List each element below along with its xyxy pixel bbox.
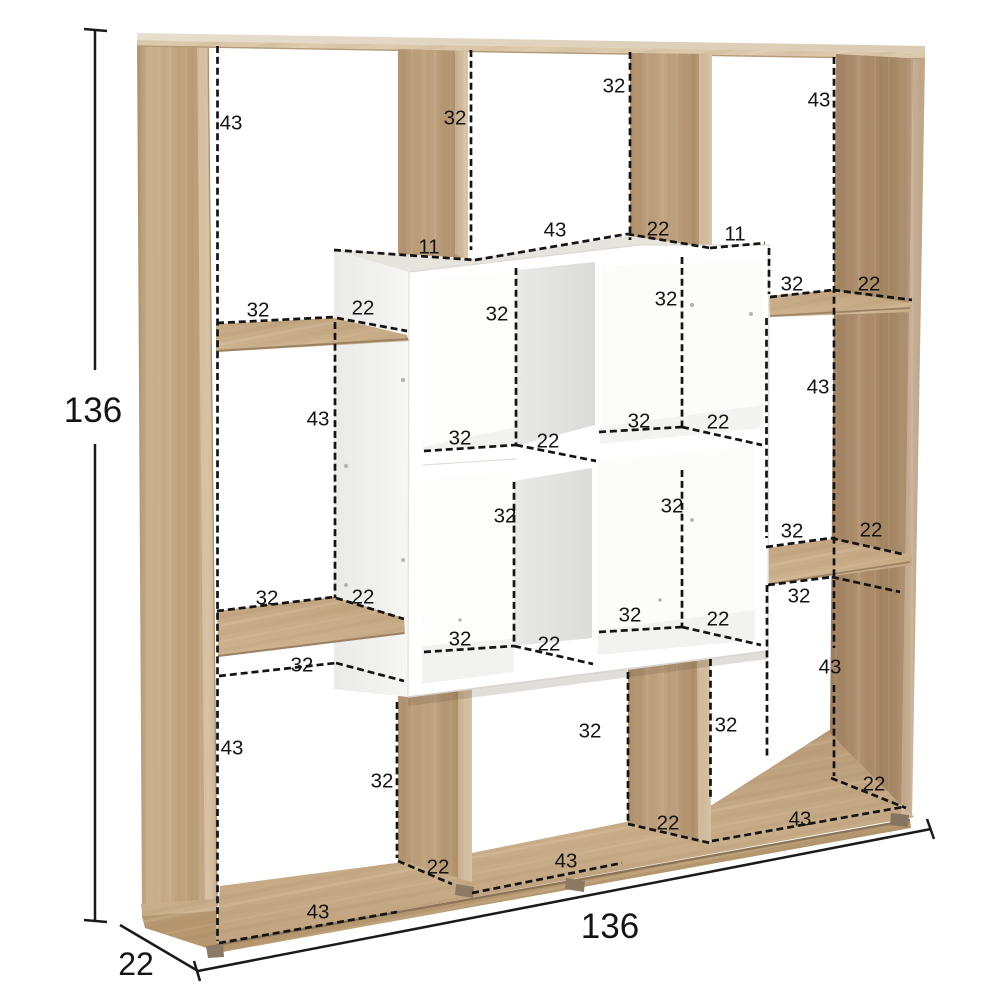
svg-text:22: 22 — [537, 429, 560, 452]
svg-text:32: 32 — [371, 769, 394, 792]
svg-text:43: 43 — [221, 736, 244, 759]
svg-text:32: 32 — [247, 298, 270, 321]
svg-text:43: 43 — [819, 655, 842, 678]
svg-text:32: 32 — [449, 627, 472, 650]
svg-text:22: 22 — [657, 811, 680, 834]
svg-text:43: 43 — [789, 807, 812, 830]
svg-text:22: 22 — [860, 518, 883, 541]
svg-text:136: 136 — [581, 907, 639, 946]
svg-text:32: 32 — [449, 426, 472, 449]
svg-text:11: 11 — [724, 222, 745, 245]
svg-text:32: 32 — [486, 302, 509, 325]
svg-text:32: 32 — [603, 74, 626, 97]
svg-text:22: 22 — [427, 855, 450, 878]
svg-text:32: 32 — [494, 504, 517, 527]
svg-text:22: 22 — [538, 632, 561, 655]
svg-text:32: 32 — [579, 719, 602, 742]
svg-text:22: 22 — [647, 217, 670, 240]
svg-text:22: 22 — [352, 585, 375, 608]
svg-text:22: 22 — [707, 410, 730, 433]
svg-text:22: 22 — [352, 296, 375, 319]
svg-text:22: 22 — [863, 772, 886, 795]
svg-text:43: 43 — [808, 88, 831, 111]
svg-text:22: 22 — [858, 272, 881, 295]
svg-text:32: 32 — [661, 494, 684, 517]
svg-text:32: 32 — [781, 272, 804, 295]
svg-text:43: 43 — [555, 849, 578, 872]
svg-text:32: 32 — [628, 409, 651, 432]
svg-text:32: 32 — [256, 586, 279, 609]
svg-text:32: 32 — [655, 287, 678, 310]
svg-text:32: 32 — [715, 713, 738, 736]
svg-text:32: 32 — [781, 519, 804, 542]
svg-text:32: 32 — [291, 653, 314, 676]
svg-text:32: 32 — [619, 603, 642, 626]
svg-text:22: 22 — [707, 607, 730, 630]
svg-text:43: 43 — [307, 900, 330, 923]
svg-text:43: 43 — [807, 375, 830, 398]
svg-text:43: 43 — [307, 407, 330, 430]
svg-text:32: 32 — [788, 584, 811, 607]
svg-text:43: 43 — [544, 218, 567, 241]
svg-text:136: 136 — [64, 391, 122, 430]
svg-text:11: 11 — [418, 235, 439, 258]
svg-text:22: 22 — [118, 946, 154, 982]
svg-text:32: 32 — [444, 106, 467, 129]
svg-text:43: 43 — [220, 111, 243, 134]
